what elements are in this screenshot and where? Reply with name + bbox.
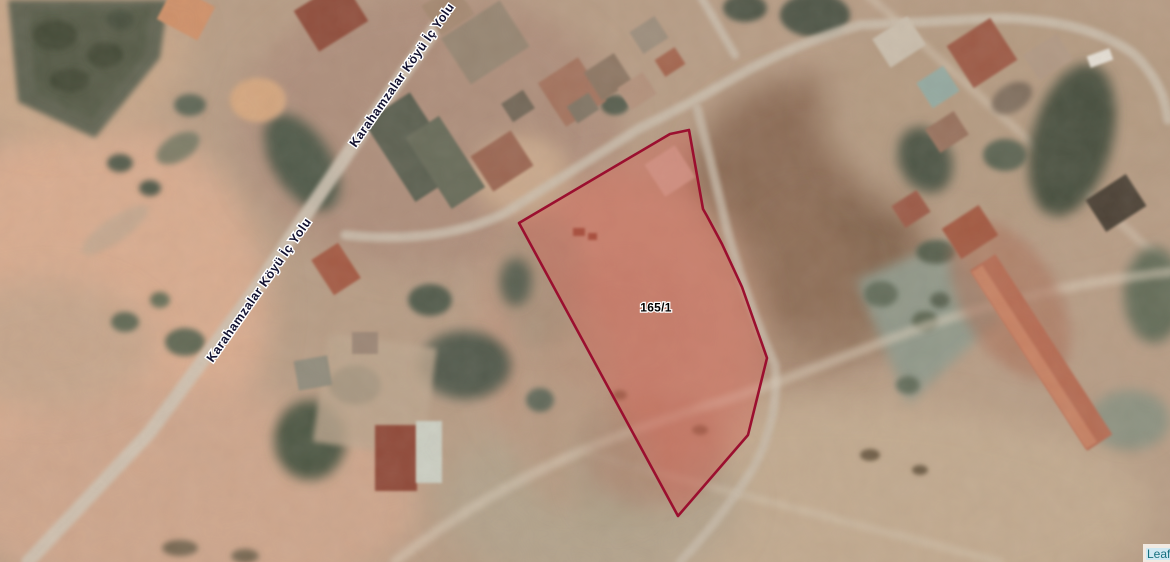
svg-text:Leaf: Leaf [1147, 547, 1170, 561]
svg-text:165/1: 165/1 [640, 301, 672, 315]
